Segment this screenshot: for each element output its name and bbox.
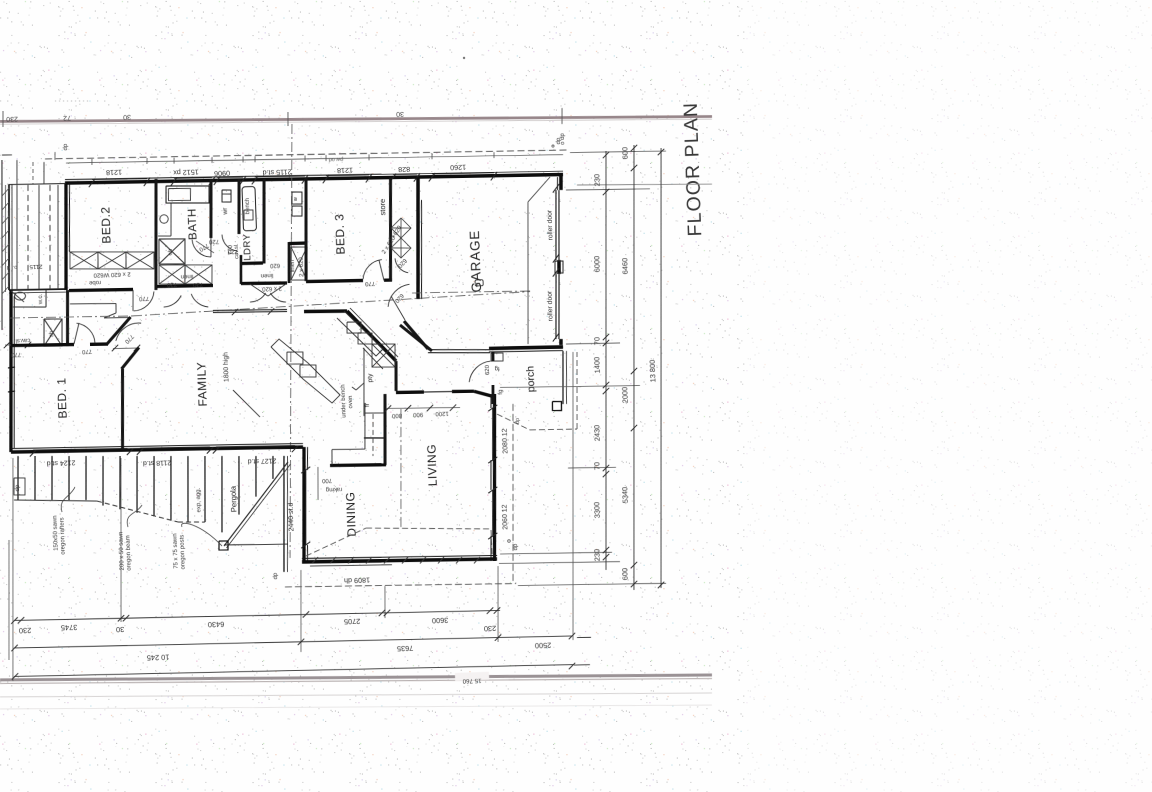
svg-text:w: w [293,197,299,202]
svg-text:2000: 2000 [620,387,630,404]
svg-text:75 x 75 sawn: 75 x 75 sawn [172,533,179,569]
svg-text:5340: 5340 [620,487,630,504]
svg-text:raking: raking [326,486,343,493]
svg-text:700: 700 [321,477,332,483]
svg-text:30: 30 [396,110,404,117]
svg-text:720: 720 [208,238,219,244]
svg-text:under bench: under bench [340,384,347,418]
svg-text:900: 900 [412,411,423,417]
svg-text:30: 30 [116,625,125,634]
svg-text:0906: 0906 [214,169,230,179]
svg-text:3600: 3600 [432,616,449,626]
svg-text:2115 st.d: 2115 st.d [262,168,291,178]
svg-text:cav.sl.: cav.sl. [234,243,241,259]
svg-text:2080 12: 2080 12 [502,428,510,454]
svg-text:30: 30 [123,113,131,120]
svg-text:2440 st.d: 2440 st.d [288,502,296,531]
svg-text:roller door: roller door [546,290,554,322]
svg-text:230: 230 [6,115,18,122]
svg-text:fg: fg [494,365,499,371]
svg-text:600: 600 [620,568,629,581]
svg-text:2115: 2115 [29,263,43,269]
svg-text:bench: bench [245,198,252,215]
svg-text:store: store [378,199,388,216]
svg-text:7635: 7635 [397,644,414,654]
svg-text:70: 70 [592,462,601,471]
svg-text:2060 12: 2060 12 [502,504,510,530]
svg-text:BATH: BATH [186,208,199,240]
svg-text:o dp: o dp [560,132,566,145]
svg-text:3300: 3300 [592,502,602,519]
svg-text:oregon posts: oregon posts [179,535,186,570]
svg-text:roller door: roller door [546,209,554,241]
svg-text:LIVING: LIVING [424,444,439,487]
svg-text:2430: 2430 [592,425,602,442]
svg-text:13 800: 13 800 [648,360,658,383]
svg-text:770: 770 [138,295,149,301]
svg-text:BED.2: BED.2 [98,206,113,244]
svg-text:porch: porch [525,366,538,393]
svg-text:exp. agg.: exp. agg. [196,487,203,512]
svg-text:15 760: 15 760 [462,677,482,685]
svg-text:2705: 2705 [344,617,361,627]
svg-text:dp: dp [63,143,69,151]
svg-text:2118 st.d: 2118 st.d [143,458,172,466]
svg-text:2124 st.d: 2124 st.d [46,458,75,466]
svg-text:72: 72 [63,114,71,121]
svg-text:sh: sh [168,249,174,256]
svg-text:70: 70 [592,337,601,346]
svg-text:230: 230 [484,624,497,633]
svg-text:linen: linen [181,273,194,279]
svg-text:1200: 1200 [435,410,449,416]
svg-text:dp: dp [513,543,519,551]
svg-text:sh: sh [49,331,55,338]
svg-text:2 x 620: 2 x 620 [299,256,306,277]
svg-text:pw od: pw od [329,156,344,163]
svg-text:dp: dp [273,572,279,580]
svg-text:Pergola: Pergola [229,485,239,512]
svg-text:6000: 6000 [592,256,602,273]
svg-text:1512 px: 1512 px [173,168,199,178]
svg-text:LDRY: LDRY [242,233,254,261]
svg-text:DINING: DINING [343,491,359,536]
svg-text:robe: robe [88,279,101,285]
svg-text:2 x 620: 2 x 620 [261,285,282,292]
svg-text:FAMILY: FAMILY [194,362,210,407]
svg-text:230: 230 [592,174,601,187]
svg-text:230: 230 [592,549,601,562]
svg-text:2500: 2500 [535,641,552,651]
svg-text:1809 dh: 1809 dh [344,576,370,586]
svg-text:1218: 1218 [106,168,122,178]
svg-text:oregon beam: oregon beam [125,535,132,571]
svg-text:600: 600 [620,147,629,160]
svg-text:1800 high: 1800 high [222,352,230,382]
svg-text:800: 800 [391,412,402,418]
svg-text:620: 620 [269,262,280,268]
svg-text:dp: dp [15,484,21,492]
svg-text:770: 770 [364,280,375,286]
svg-text:770: 770 [228,244,234,255]
svg-text:fg: fg [498,389,504,394]
svg-text:linen: linen [261,272,274,278]
svg-text:1260: 1260 [450,163,466,173]
svg-text:2127 st.d: 2127 st.d [247,457,276,465]
svg-text:720: 720 [166,281,177,287]
svg-text:o.l d: o.l d [7,264,18,270]
svg-text:770: 770 [10,351,21,357]
svg-text:620: 620 [485,364,491,375]
svg-text:10 245: 10 245 [147,653,170,663]
svg-text:3745: 3745 [61,623,78,633]
svg-text:wr: wr [222,207,229,216]
svg-text:770: 770 [81,348,92,354]
svg-text:BED. 3: BED. 3 [332,213,347,254]
svg-text:BED. 1: BED. 1 [54,377,69,418]
svg-text:w.c.: w.c. [38,293,44,305]
svg-text:1400: 1400 [592,357,602,374]
svg-text:dp: dp [515,418,521,424]
svg-text:1218: 1218 [337,166,353,176]
svg-text:6460: 6460 [620,258,630,275]
svg-text:828: 828 [398,165,410,174]
svg-text:oven: oven [348,395,354,408]
svg-text:FLOOR PLAN: FLOOR PLAN [680,102,707,237]
svg-text:pty: pty [367,373,374,383]
svg-text:cav.sl.: cav.sl. [13,337,30,344]
svg-text:230: 230 [19,626,32,635]
svg-text:linen: linen [290,260,296,273]
svg-text:720: 720 [192,281,203,287]
svg-text:6430: 6430 [208,620,225,630]
